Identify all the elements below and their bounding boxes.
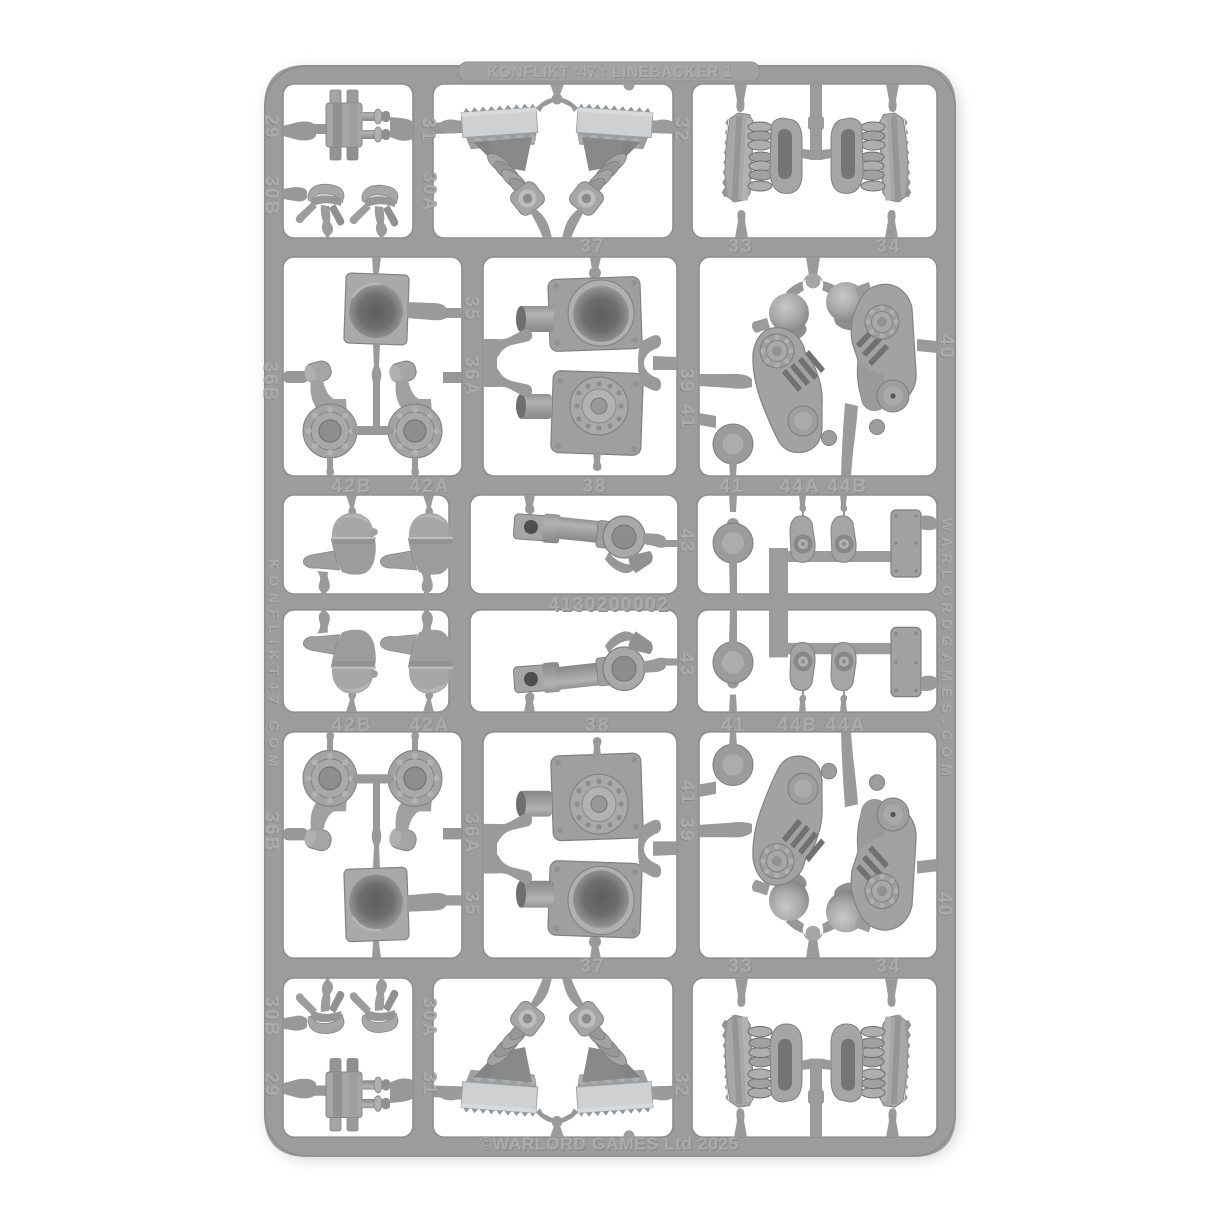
svg-text:33: 33 — [728, 236, 753, 257]
svg-text:44A 44B: 44A 44B — [780, 476, 868, 497]
svg-text:41: 41 — [721, 715, 746, 736]
svg-text:42A: 42A — [410, 715, 451, 736]
svg-text:38: 38 — [585, 715, 610, 736]
svg-text:©WARLORD GAMES Ltd 2025: ©WARLORD GAMES Ltd 2025 — [479, 1134, 739, 1154]
svg-text:44B 44A: 44B 44A — [778, 715, 867, 736]
svg-text:43: 43 — [675, 652, 696, 677]
svg-text:42A: 42A — [410, 476, 451, 497]
svg-text:41: 41 — [676, 404, 697, 429]
svg-text:36A: 36A — [460, 357, 481, 398]
svg-text:35: 35 — [460, 296, 481, 321]
svg-text:30A: 30A — [418, 998, 439, 1039]
svg-text:33: 33 — [728, 956, 753, 977]
svg-text:34: 34 — [876, 236, 901, 257]
svg-text:43: 43 — [675, 528, 696, 553]
svg-text:41: 41 — [719, 476, 744, 497]
svg-text:40: 40 — [935, 334, 956, 359]
svg-text:29: 29 — [260, 1072, 281, 1097]
svg-text:29: 29 — [260, 114, 281, 139]
svg-text:36B: 36B — [260, 812, 281, 853]
svg-text:KONFLIKT '47 : LINEBACKER 1: KONFLIKT '47 : LINEBACKER 1 — [487, 64, 732, 81]
svg-text:38: 38 — [582, 476, 607, 497]
svg-text:39: 39 — [675, 368, 696, 393]
svg-text:30B: 30B — [260, 176, 281, 217]
svg-text:36B: 36B — [259, 362, 280, 403]
svg-text:34: 34 — [876, 956, 901, 977]
svg-text:WARLORDGAMES.COM: WARLORDGAMES.COM — [939, 518, 955, 782]
svg-text:41: 41 — [676, 780, 697, 805]
svg-text:31: 31 — [418, 1071, 439, 1096]
svg-text:32: 32 — [670, 117, 691, 142]
svg-text:37: 37 — [580, 236, 605, 257]
svg-text:36A: 36A — [460, 814, 481, 855]
svg-text:30A: 30A — [418, 172, 439, 213]
svg-text:35: 35 — [460, 891, 481, 916]
svg-text:39: 39 — [675, 817, 696, 842]
svg-text:30B: 30B — [260, 997, 281, 1038]
svg-text:KONFLIKT47.COM: KONFLIKT47.COM — [266, 559, 282, 773]
svg-text:37: 37 — [580, 956, 605, 977]
svg-text:31: 31 — [417, 117, 438, 142]
svg-text:32: 32 — [670, 1072, 691, 1097]
svg-text:4130200002: 4130200002 — [549, 595, 670, 616]
svg-text:42B: 42B — [332, 715, 373, 736]
svg-text:42B: 42B — [332, 476, 373, 497]
svg-text:40: 40 — [933, 892, 954, 917]
